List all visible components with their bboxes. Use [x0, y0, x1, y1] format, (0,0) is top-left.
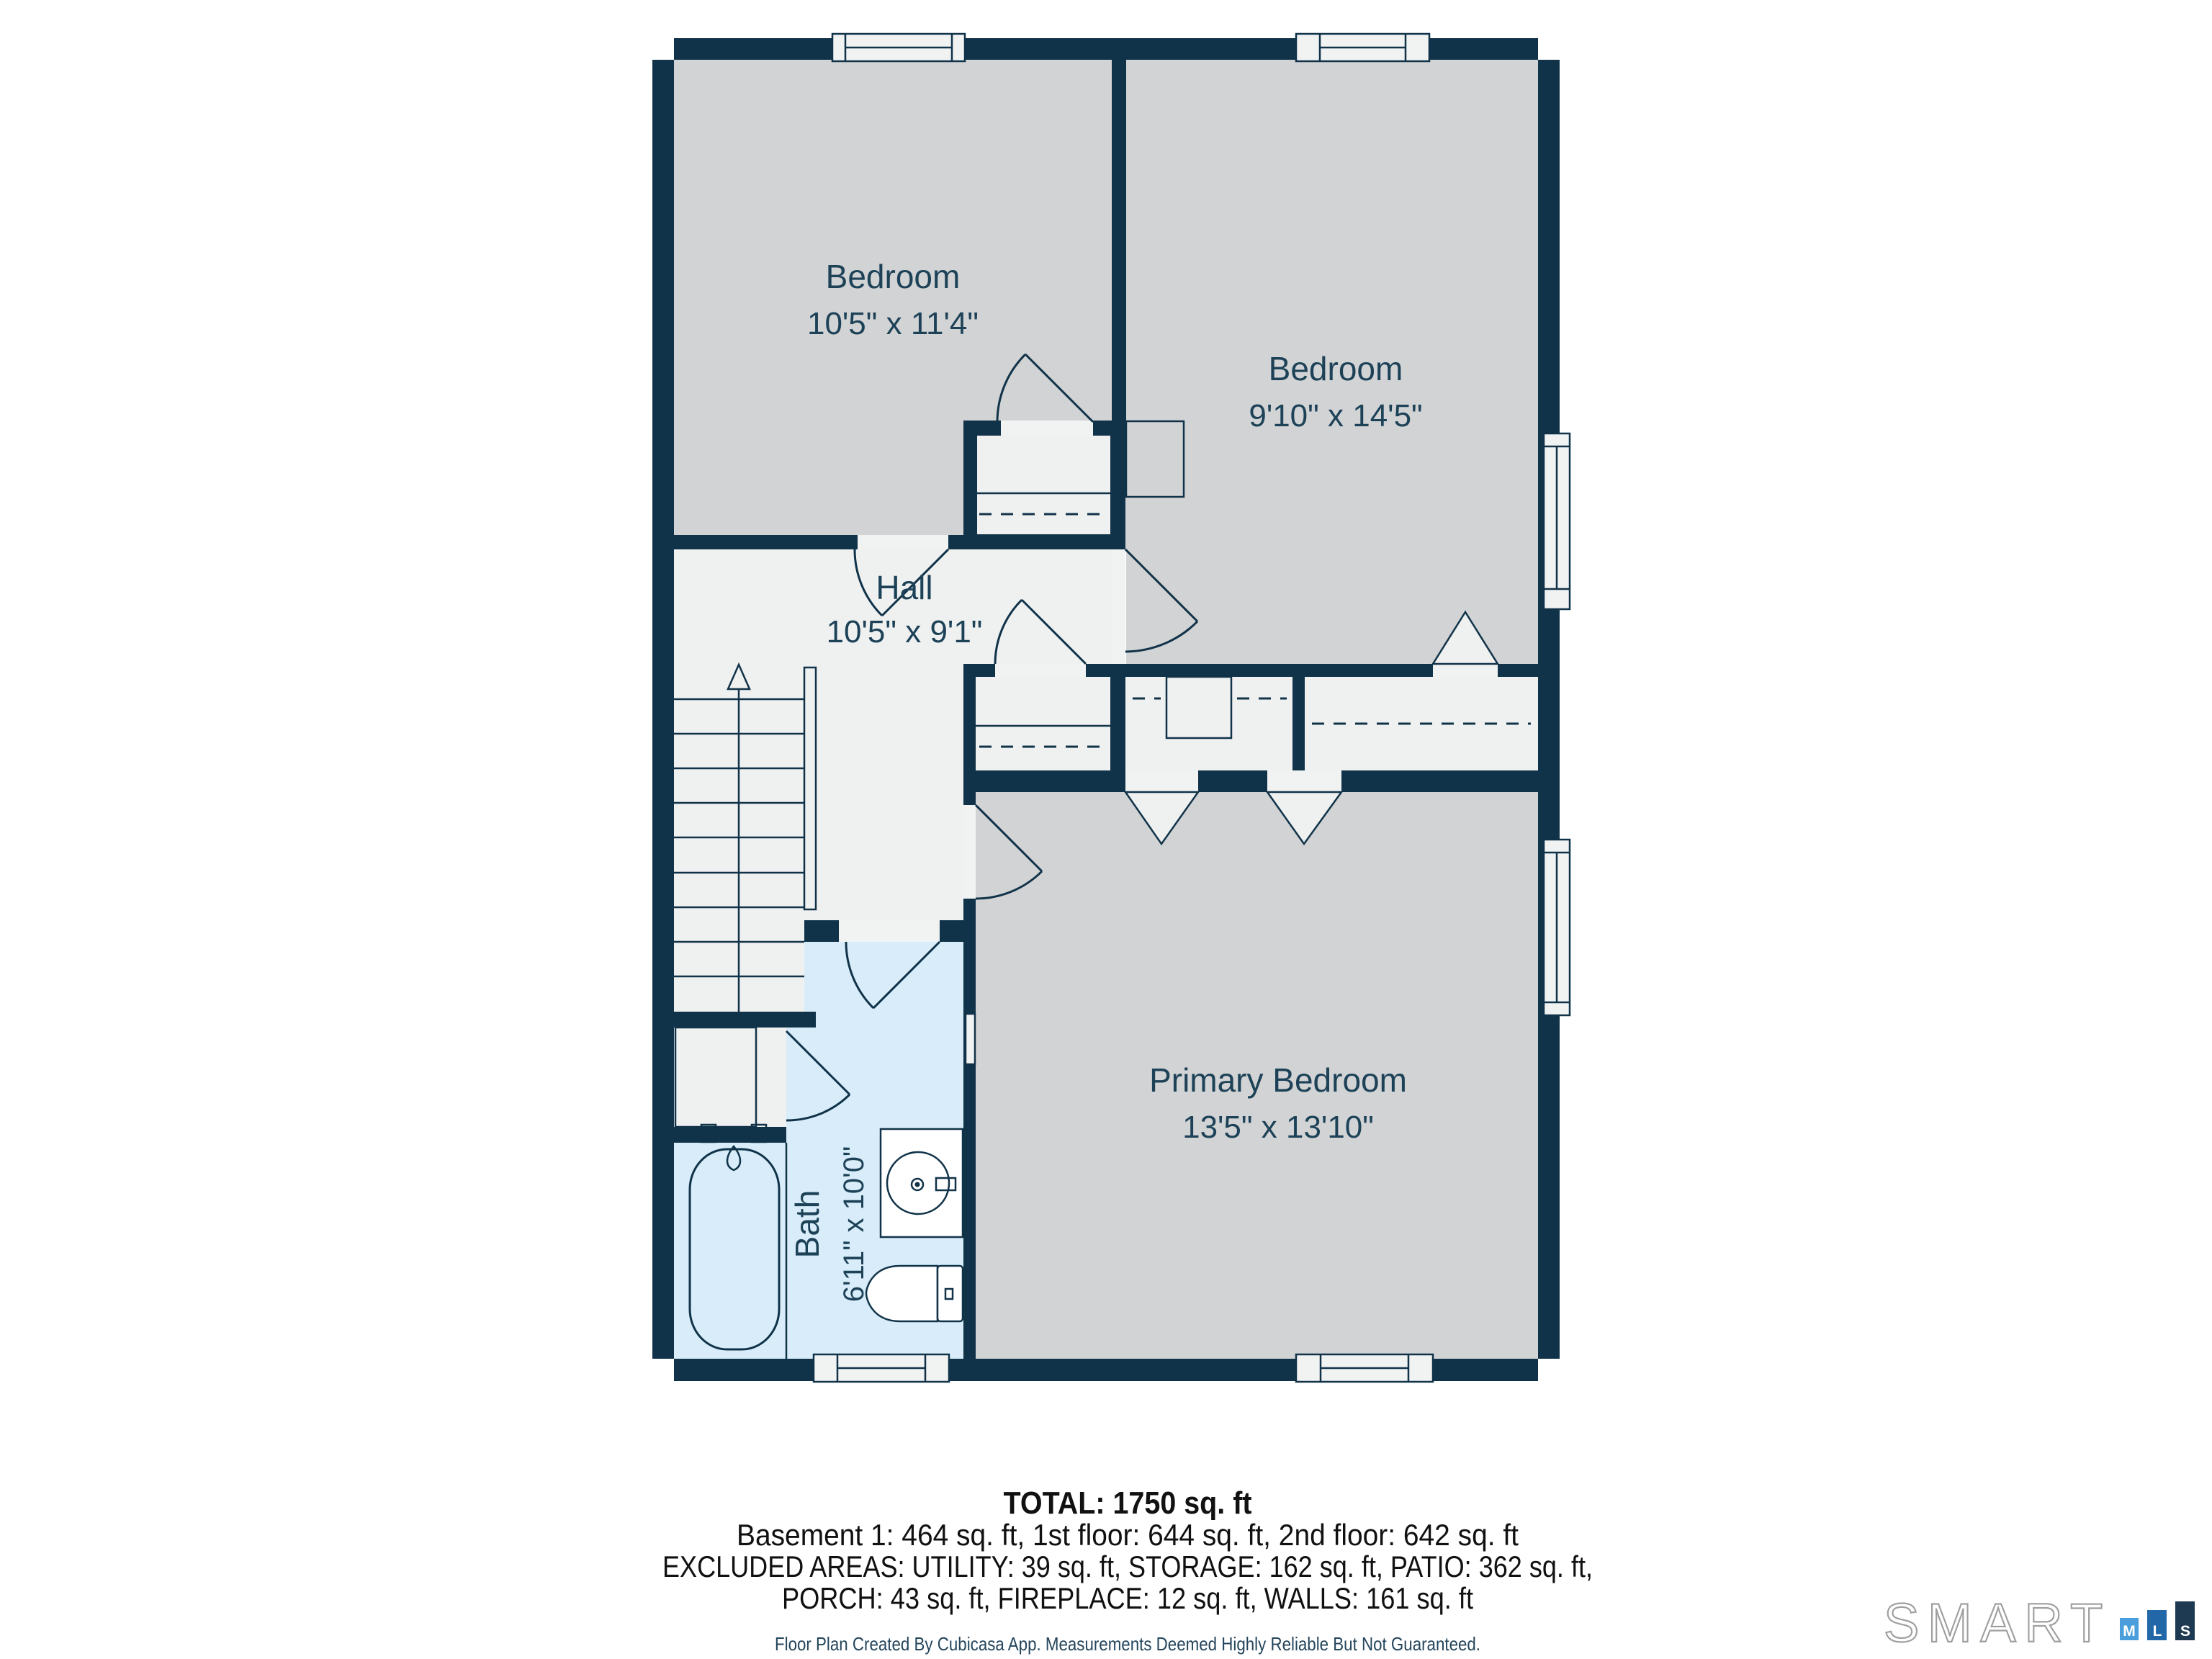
hall-closet-floor [976, 677, 1110, 770]
bath-pocket-door [966, 1014, 975, 1064]
excluded-areas-1: EXCLUDED AREAS: UTILITY: 39 sq. ft, STOR… [662, 1550, 1593, 1583]
bedroom-2-label: Bedroom [1269, 350, 1403, 387]
total-area: TOTAL: 1750 sq. ft [1004, 1485, 1252, 1521]
floors-breakdown: Basement 1: 464 sq. ft, 1st floor: 644 s… [737, 1518, 1519, 1552]
logo-brand-text: SMART [1884, 1593, 2111, 1654]
bedroom-1-dims: 10'5" x 11'4" [807, 306, 979, 341]
bedroom1-door-sill [858, 535, 948, 549]
bath-label: Bath [788, 1190, 826, 1259]
staircase [674, 664, 816, 1012]
bedroom1-closet-door-sill [1001, 421, 1093, 436]
primary-closet-sill-right [1267, 770, 1341, 792]
bedroom2-wardrobe [1126, 421, 1184, 497]
bath-door-sill [839, 920, 940, 942]
window-bedroom2-right [1544, 433, 1570, 609]
toilet [866, 1266, 963, 1321]
under-stair-closet [675, 1028, 756, 1127]
toilet-bowl [866, 1266, 938, 1321]
primary-bedroom-dims: 13'5" x 13'10" [1182, 1110, 1374, 1145]
window-bedroom2-top [1296, 34, 1429, 61]
area-summary: TOTAL: 1750 sq. ft Basement 1: 464 sq. f… [662, 1485, 1593, 1655]
bedroom-2-dims: 9'10" x 14'5" [1249, 398, 1422, 433]
window-bath-bottom [814, 1354, 949, 1382]
window-bedroom1-top [832, 34, 965, 61]
sink-drain-dot [915, 1182, 920, 1187]
sink-vanity [881, 1129, 963, 1237]
bath-closet-door-gap [756, 1028, 786, 1127]
bedroom2-closet-door-sill [1433, 664, 1498, 677]
bedroom1-closet-floor [977, 436, 1110, 534]
floor-plan-page: Bedroom 10'5" x 11'4" Bedroom 9'10" x 14… [0, 0, 2212, 1659]
logo-tile-m-letter: M [2123, 1623, 2136, 1640]
hall-closet-door-sill [995, 664, 1086, 677]
hall-label: Hall [876, 569, 932, 606]
hall-dims: 10'5" x 9'1" [827, 614, 983, 649]
smartmls-logo: SMART M L S [1884, 1593, 2195, 1654]
logo-tile-s-letter: S [2180, 1623, 2190, 1640]
window-primary-bottom [1296, 1354, 1433, 1382]
toilet-tank [938, 1266, 963, 1321]
bedroom2-door-gap [1112, 549, 1125, 664]
floor-plan-canvas: Bedroom 10'5" x 11'4" Bedroom 9'10" x 14… [0, 0, 2212, 1659]
logo-tile-l-letter: L [2153, 1623, 2162, 1640]
primary-closet-sill-left [1125, 770, 1198, 792]
window-primary-right [1544, 840, 1570, 1015]
stair-railing [804, 667, 816, 909]
closet-row-cabinet [1166, 677, 1231, 738]
primary-door-gap [963, 805, 976, 899]
primary-bedroom-label: Primary Bedroom [1149, 1061, 1407, 1099]
bedroom-1-label: Bedroom [826, 258, 961, 295]
excluded-areas-2: PORCH: 43 sq. ft, FIREPLACE: 12 sq. ft, … [782, 1581, 1473, 1615]
bath-dims: 6'11" x 10'0" [838, 1146, 870, 1302]
disclaimer: Floor Plan Created By Cubicasa App. Meas… [775, 1633, 1480, 1655]
